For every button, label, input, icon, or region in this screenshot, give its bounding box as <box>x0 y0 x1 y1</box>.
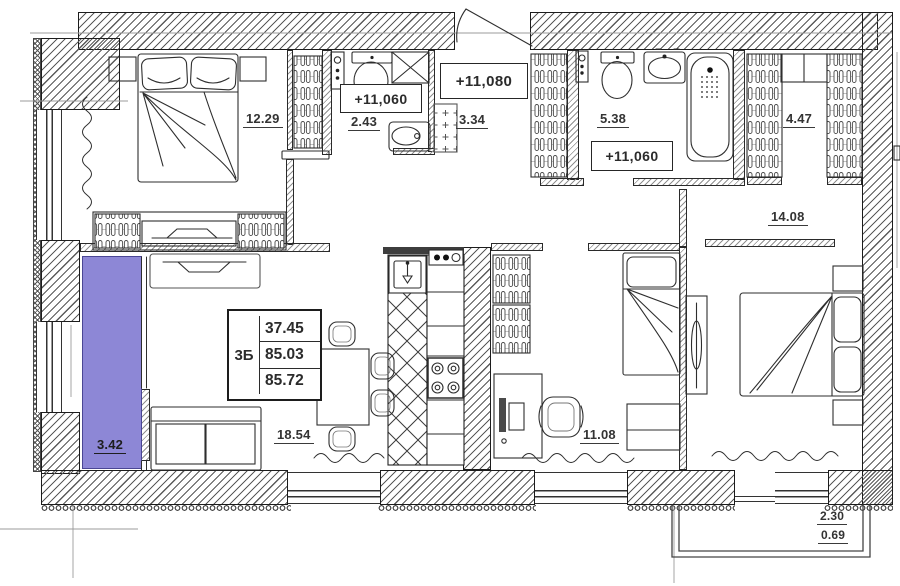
elevation-mark-hallway: +11,080 <box>440 63 528 99</box>
radiator-bedroom2 <box>712 452 838 461</box>
wardrobe-hall-left <box>294 56 322 148</box>
area-label-kids-room: 11.08 <box>580 428 619 444</box>
elevation-mark-wc: +11,060 <box>340 84 422 113</box>
kitchen-coffee-machine <box>429 250 463 265</box>
tv-bedroom2 <box>686 296 707 394</box>
area-label-bathroom: 5.38 <box>597 112 629 128</box>
nightstand-bedroom2-top <box>833 266 863 291</box>
hall-storage-block <box>434 104 457 152</box>
vent-shaft <box>392 52 429 83</box>
bathtub <box>687 53 733 161</box>
wardrobe-closet-right <box>827 54 862 177</box>
area-label-living-kitchen: 18.54 <box>274 428 314 444</box>
area-label-hallway: 3.34 <box>456 113 488 129</box>
single-bed-kids <box>623 253 680 375</box>
wardrobe-hall-bath <box>531 54 567 177</box>
sofa-living <box>151 407 261 470</box>
apartment-info-table: 3Б 37.45 85.03 85.72 <box>227 309 322 401</box>
tv-bedroom1 <box>152 229 232 238</box>
cabinet-kids <box>627 404 680 450</box>
area-label-wc: 2.43 <box>348 115 380 131</box>
floor-plan: 12.29 2.43 3.34 5.38 4.47 14.08 18.54 11… <box>0 0 900 586</box>
apartment-type-label: 3Б <box>229 311 259 399</box>
nightstand-bedroom1-right <box>240 57 266 81</box>
washbasin-bath <box>644 49 685 83</box>
switch-box-bath <box>576 51 588 82</box>
double-bed-bedroom1 <box>138 54 238 182</box>
wardrobe-kids <box>493 255 530 353</box>
wardrobe-closet-left <box>747 54 782 177</box>
kitchen-stove <box>428 358 463 398</box>
area-label-closet: 4.47 <box>783 112 815 128</box>
toilet-bath <box>601 52 634 99</box>
washbasin-wc <box>389 122 430 151</box>
tv-console-living <box>150 254 260 288</box>
bedroom1-door-leaf <box>282 151 329 159</box>
dining-chair-bottom <box>329 427 355 451</box>
wardrobe-bedroom1 <box>93 212 286 250</box>
entrance-door <box>457 9 532 46</box>
loggia-glazing <box>142 257 147 470</box>
nightstand-bedroom1-left <box>109 57 136 81</box>
area-label-loggia: 3.42 <box>94 438 126 454</box>
living-area-value: 37.45 <box>260 316 320 341</box>
apartment-area-value: 85.03 <box>260 341 320 367</box>
total-area-value: 85.72 <box>260 368 320 394</box>
area-label-bedroom1: 12.29 <box>243 112 283 128</box>
double-bed-bedroom2 <box>740 293 864 396</box>
radiator-bedroom1 <box>83 97 92 209</box>
balcony-dim-depth: 0.69 <box>818 529 848 544</box>
dining-table <box>317 349 369 425</box>
apartment-areas: 37.45 85.03 85.72 <box>259 316 320 394</box>
kitchen-sink <box>389 256 426 293</box>
balcony-dim-width: 2.30 <box>817 510 847 525</box>
closet-shelf <box>781 54 827 82</box>
radiator-living <box>314 454 384 463</box>
nightstand-bedroom2-bottom <box>833 400 863 425</box>
dining-chair-top <box>329 322 355 346</box>
area-label-bedroom2: 14.08 <box>768 210 808 226</box>
desk-kids <box>494 374 542 458</box>
elevation-mark-bathroom: +11,060 <box>591 141 673 171</box>
desk-chair-kids <box>539 397 583 437</box>
